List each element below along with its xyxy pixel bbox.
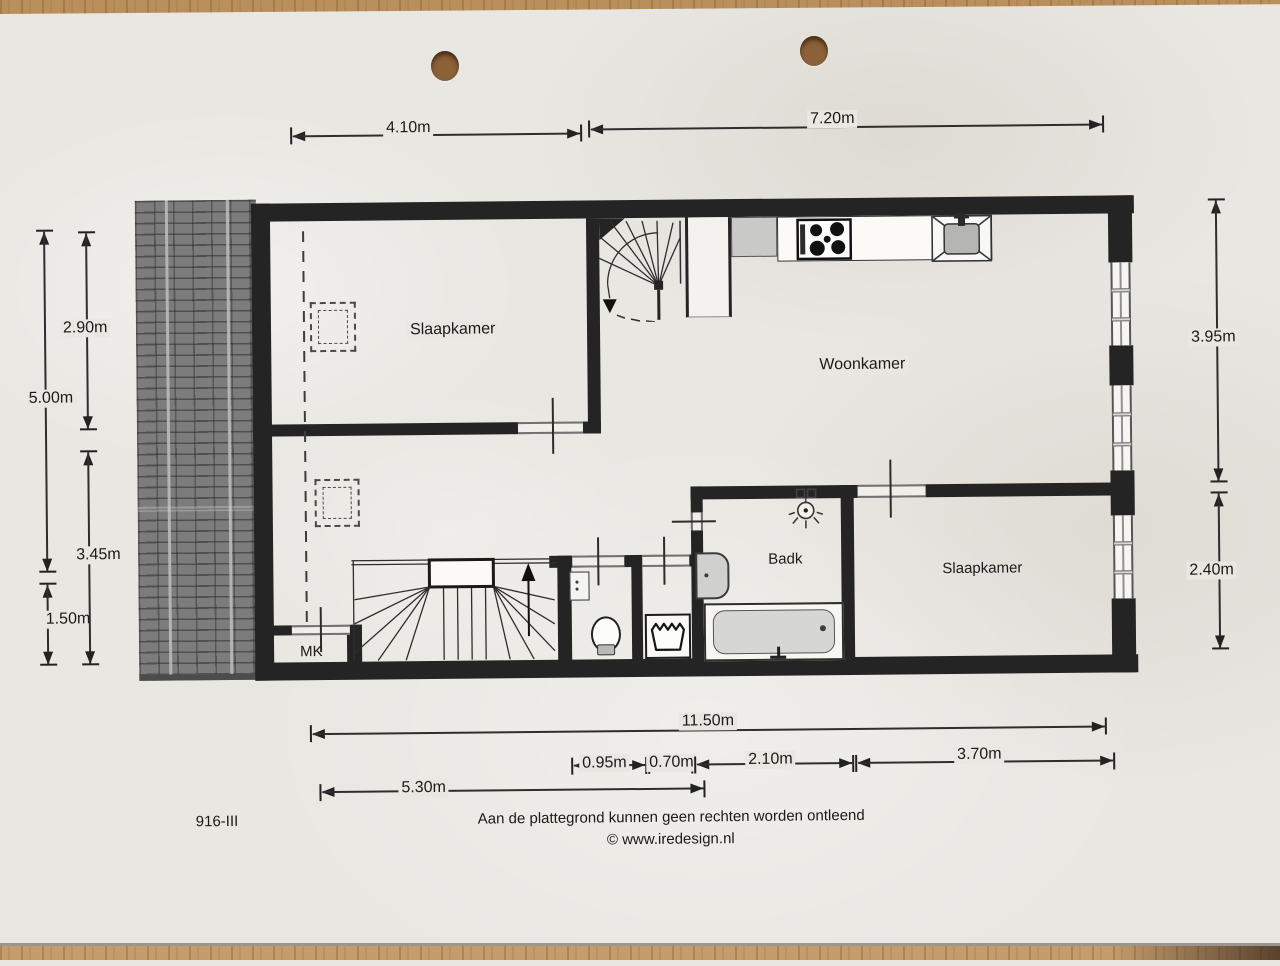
shower-lamp-icon bbox=[787, 488, 827, 530]
dim-label-bottom-hall: 5.30m bbox=[398, 779, 449, 798]
window-mullion bbox=[1114, 570, 1132, 574]
dim-label-bottom-toilet: 0.95m bbox=[579, 754, 630, 773]
copyright-text: © www.iredesign.nl bbox=[604, 830, 738, 849]
dim-tick bbox=[82, 663, 99, 665]
dim-tick bbox=[852, 755, 854, 772]
dim-tick bbox=[1113, 752, 1115, 769]
dim-tick bbox=[1212, 647, 1229, 649]
dim-label-right-upper: 3.95m bbox=[1188, 328, 1239, 347]
dim-line bbox=[293, 133, 580, 137]
wall-exterior-right bbox=[1112, 598, 1137, 672]
dim-arrow bbox=[1089, 120, 1102, 130]
wall-exterior-right bbox=[1110, 470, 1134, 515]
dim-tick bbox=[1102, 116, 1104, 133]
dim-tick bbox=[703, 780, 705, 797]
toilet-base bbox=[597, 644, 615, 655]
punch-hole bbox=[431, 51, 459, 81]
room-label-bathroom: Badk bbox=[765, 550, 805, 568]
wall-exterior-right bbox=[1108, 195, 1133, 262]
dim-tick bbox=[40, 664, 57, 666]
dim-label-right-lower: 2.40m bbox=[1186, 561, 1237, 580]
dim-label-bottom-bedroom: 3.70m bbox=[954, 746, 1005, 765]
stove-icon bbox=[796, 218, 852, 261]
window bbox=[1112, 385, 1133, 470]
sink-detail bbox=[575, 581, 578, 584]
desk-wood-shadow bbox=[1110, 946, 1280, 960]
window bbox=[1113, 515, 1134, 598]
dim-arrow bbox=[690, 783, 703, 793]
bathtub-inner bbox=[713, 609, 835, 654]
floorplan-drawing: Slaapkamer Woonkamer Badk Slaapkamer MK … bbox=[0, 0, 1280, 966]
washbasin-drain bbox=[704, 573, 708, 577]
drawing-number: 916-III bbox=[193, 813, 242, 831]
dim-arrow bbox=[1100, 755, 1113, 765]
dim-label-left-inner-lower: 3.45m bbox=[73, 546, 124, 565]
punch-hole bbox=[800, 36, 828, 66]
desk-wood-bottom bbox=[0, 946, 1280, 960]
dim-arrow bbox=[567, 129, 580, 139]
kitchen-sink-icon bbox=[931, 213, 993, 264]
toilet-sink-icon bbox=[569, 571, 589, 600]
bathtub-faucet bbox=[770, 656, 786, 659]
door-tick bbox=[597, 537, 599, 585]
skylight-dashed-inner bbox=[323, 487, 352, 519]
dim-label-bottom-bathroom: 2.10m bbox=[745, 751, 796, 770]
dim-arrow bbox=[839, 758, 852, 768]
room-label-bedroom1: Slaapkamer bbox=[407, 320, 499, 339]
wall-exterior-right bbox=[1109, 345, 1133, 385]
room-label-livingroom: Woonkamer bbox=[816, 355, 908, 374]
photo-of-floorplan: Slaapkamer Woonkamer Badk Slaapkamer MK … bbox=[0, 0, 1280, 960]
door-tick bbox=[889, 460, 892, 518]
opening-laundry bbox=[642, 555, 689, 567]
dim-label-left-outer-upper: 5.00m bbox=[26, 389, 77, 408]
dim-arrow bbox=[1092, 722, 1105, 732]
dim-line bbox=[322, 787, 703, 792]
bathtub-drain bbox=[820, 625, 826, 631]
laundry-tub-icon bbox=[645, 614, 691, 659]
dim-label-left-inner-upper: 2.90m bbox=[60, 319, 111, 338]
dim-label-top-right: 7.20m bbox=[807, 110, 858, 129]
door-tick bbox=[552, 398, 555, 454]
sink-detail bbox=[576, 588, 579, 591]
room-label-meter-closet: MK bbox=[297, 643, 326, 661]
dim-tick bbox=[1105, 718, 1107, 735]
window-mullion bbox=[1112, 317, 1130, 321]
dim-label-bottom-total: 11.50m bbox=[679, 712, 737, 731]
dim-tick bbox=[1211, 480, 1228, 482]
wall-toilet-right bbox=[631, 555, 643, 667]
door-bedroom1 bbox=[518, 422, 583, 435]
window-mullion bbox=[1113, 412, 1131, 416]
dim-label-top-left: 4.10m bbox=[383, 119, 434, 138]
door-tick bbox=[663, 537, 665, 585]
dim-tick bbox=[80, 428, 97, 430]
washbasin-icon bbox=[695, 552, 729, 599]
skylight-dashed-inner bbox=[318, 310, 348, 344]
stairs-down bbox=[596, 217, 747, 322]
dim-arrow bbox=[632, 760, 645, 770]
dim-tick bbox=[580, 125, 582, 142]
window-mullion bbox=[1114, 541, 1132, 545]
roof-tiles bbox=[135, 200, 261, 681]
window-mullion bbox=[1113, 442, 1131, 446]
disclaimer-text: Aan de plattegrond kunnen geen rechten w… bbox=[475, 807, 868, 828]
dim-label-left-outer-lower: 1.50m bbox=[43, 610, 94, 629]
room-label-bedroom2: Slaapkamer bbox=[939, 559, 1025, 577]
stairs-up bbox=[351, 556, 558, 662]
dim-label-bottom-laundry: 0.70m bbox=[646, 753, 697, 772]
dim-tick bbox=[39, 571, 56, 573]
window-mullion bbox=[1112, 288, 1130, 292]
door-tick bbox=[672, 520, 716, 522]
wall-exterior-left bbox=[251, 204, 275, 681]
window bbox=[1110, 262, 1131, 345]
